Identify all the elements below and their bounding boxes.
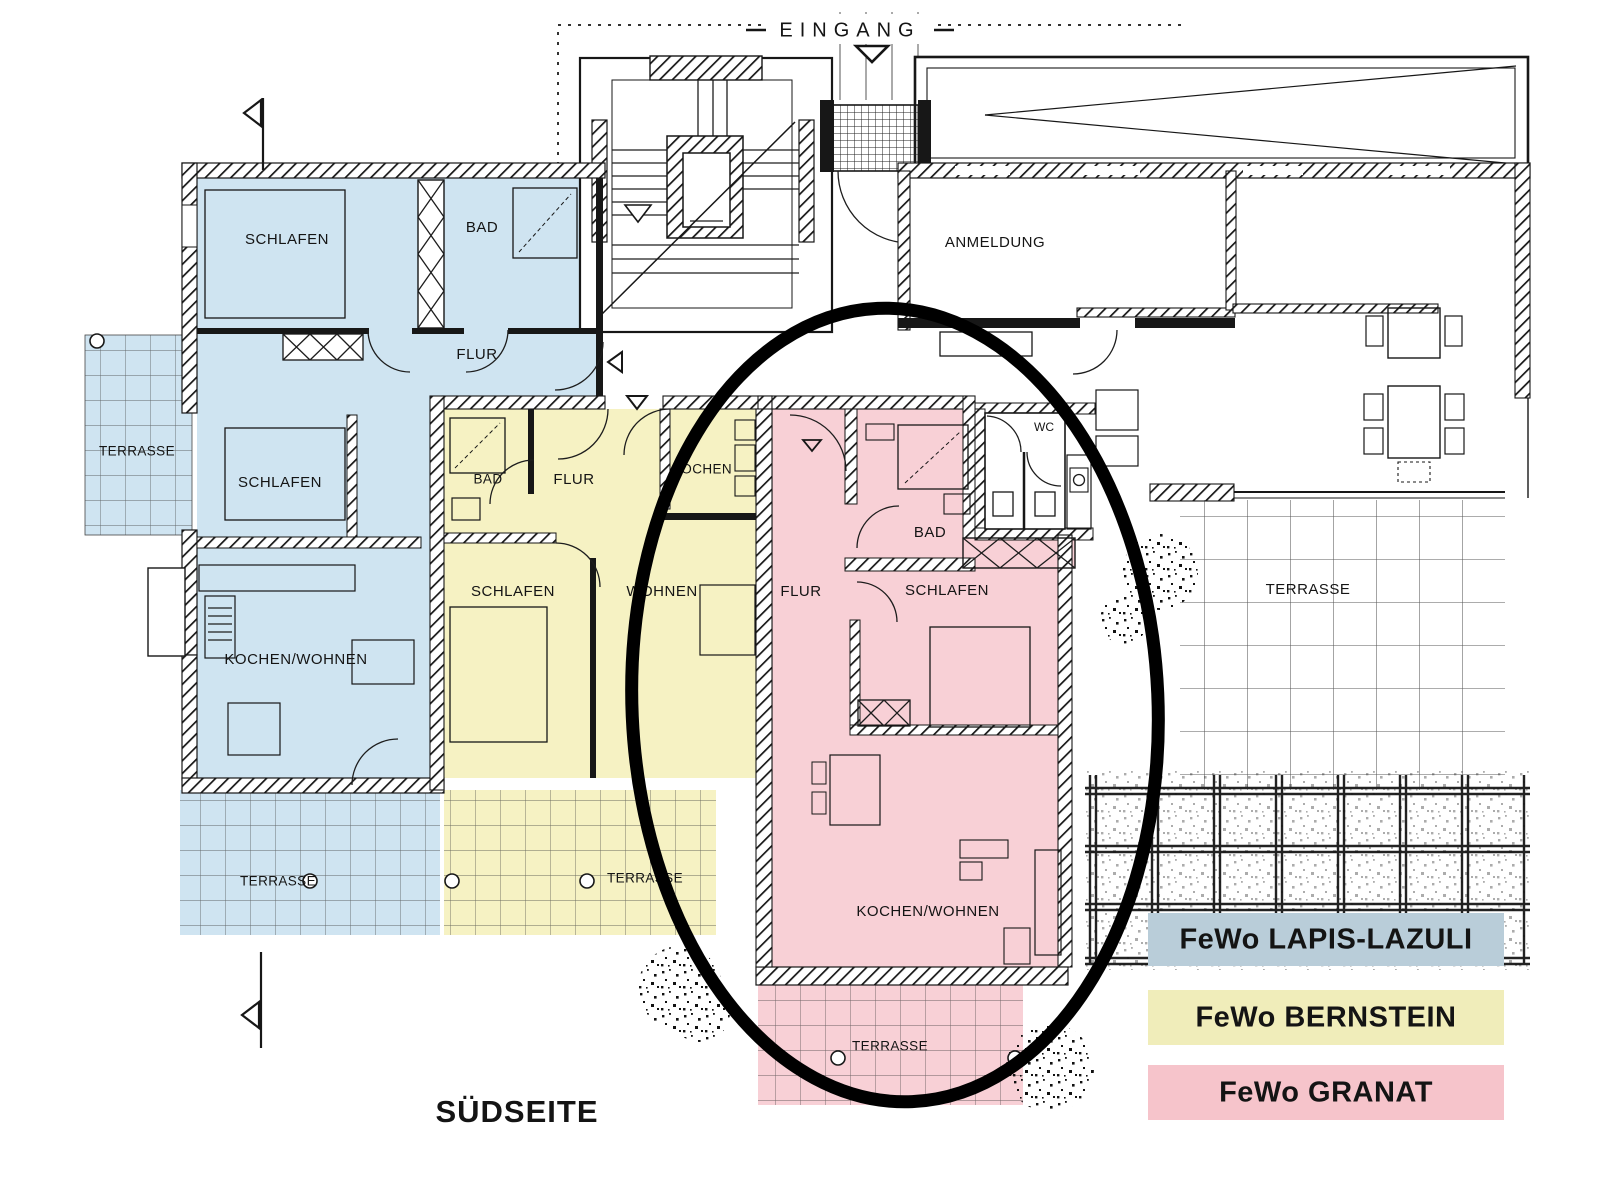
chair [1364,428,1383,454]
floor-plan-page: EINGANG [0,0,1600,1200]
suedseite-caption: SÜDSEITE [435,1094,598,1129]
room-label-granat-schlafen: SCHLAFEN [905,582,989,599]
room-label-bernstein-terrasse: TERRASSE [607,871,683,886]
room-label-granat-flur: FLUR [780,583,821,600]
stairwell [580,56,832,332]
chair [1366,316,1383,346]
room-label-lapis-schlafen1: SCHLAFEN [245,231,329,248]
chair [1445,316,1462,346]
room-label-granat-bad: BAD [914,524,946,541]
room-label-lapis-kochen-wohnen: KOCHEN/WOHNEN [224,651,367,668]
room-label-wc: WC [1034,420,1054,434]
dining-tables [1364,308,1464,482]
legend-label-granat: FeWo GRANAT [1219,1077,1433,1109]
sink [1070,468,1088,492]
room-label-granat-kochen-wohnen: KOCHEN/WOHNEN [856,903,999,920]
legend-label-bernstein: FeWo BERNSTEIN [1195,1002,1456,1034]
legend-item-lapis: FeWo LAPIS-LAZULI [1148,913,1504,966]
door-marker-bernstein-icon [627,396,647,409]
table [1388,308,1440,358]
legend-item-bernstein: FeWo BERNSTEIN [1148,990,1504,1045]
room-label-bernstein-bad: BAD [474,472,503,487]
lapis-terrasse-sued-tiles [180,790,440,935]
chair [1445,428,1464,454]
chair [1445,394,1464,420]
room-label-terrasse-ost: TERRASSE [1266,581,1351,598]
entrance-mat [833,105,919,171]
room-label-granat-terrasse: TERRASSE [852,1039,928,1054]
room-label-lapis-flur: FLUR [456,346,497,363]
wc-block [975,390,1138,540]
survey-flag-north [244,98,263,170]
legend: FeWo LAPIS-LAZULI FeWo BERNSTEIN FeWo GR… [1148,913,1504,1120]
lapis-terrasse-west-tiles [85,335,192,535]
room-label-lapis-terrasse-west: TERRASSE [99,444,175,459]
table [1388,386,1440,458]
door-marker-lapis-icon [608,352,622,372]
survey-flag-south [242,952,261,1048]
entrance-arrow-icon [856,46,888,62]
entrance-wall-right [918,100,931,172]
room-label-bernstein-flur: FLUR [553,471,594,488]
room-label-lapis-schlafen2: SCHLAFEN [238,474,322,491]
wardrobe [418,180,444,328]
chair [1364,394,1383,420]
legend-label-lapis: FeWo LAPIS-LAZULI [1179,924,1472,956]
room-label-bernstein-schlafen: SCHLAFEN [471,583,555,600]
common-area-walls [898,163,1530,398]
entrance-wall-left [820,100,834,172]
room-label-lapis-bad: BAD [466,219,498,236]
chair [1398,462,1430,482]
room-label-lapis-terrasse-sued: TERRASSE [240,874,316,889]
legend-item-granat: FeWo GRANAT [1148,1065,1504,1120]
ramp-block [915,57,1528,167]
floor-plan-svg: EINGANG [0,0,1600,1200]
eingang-label: EINGANG [779,19,920,41]
room-label-anmeldung: ANMELDUNG [945,234,1045,251]
